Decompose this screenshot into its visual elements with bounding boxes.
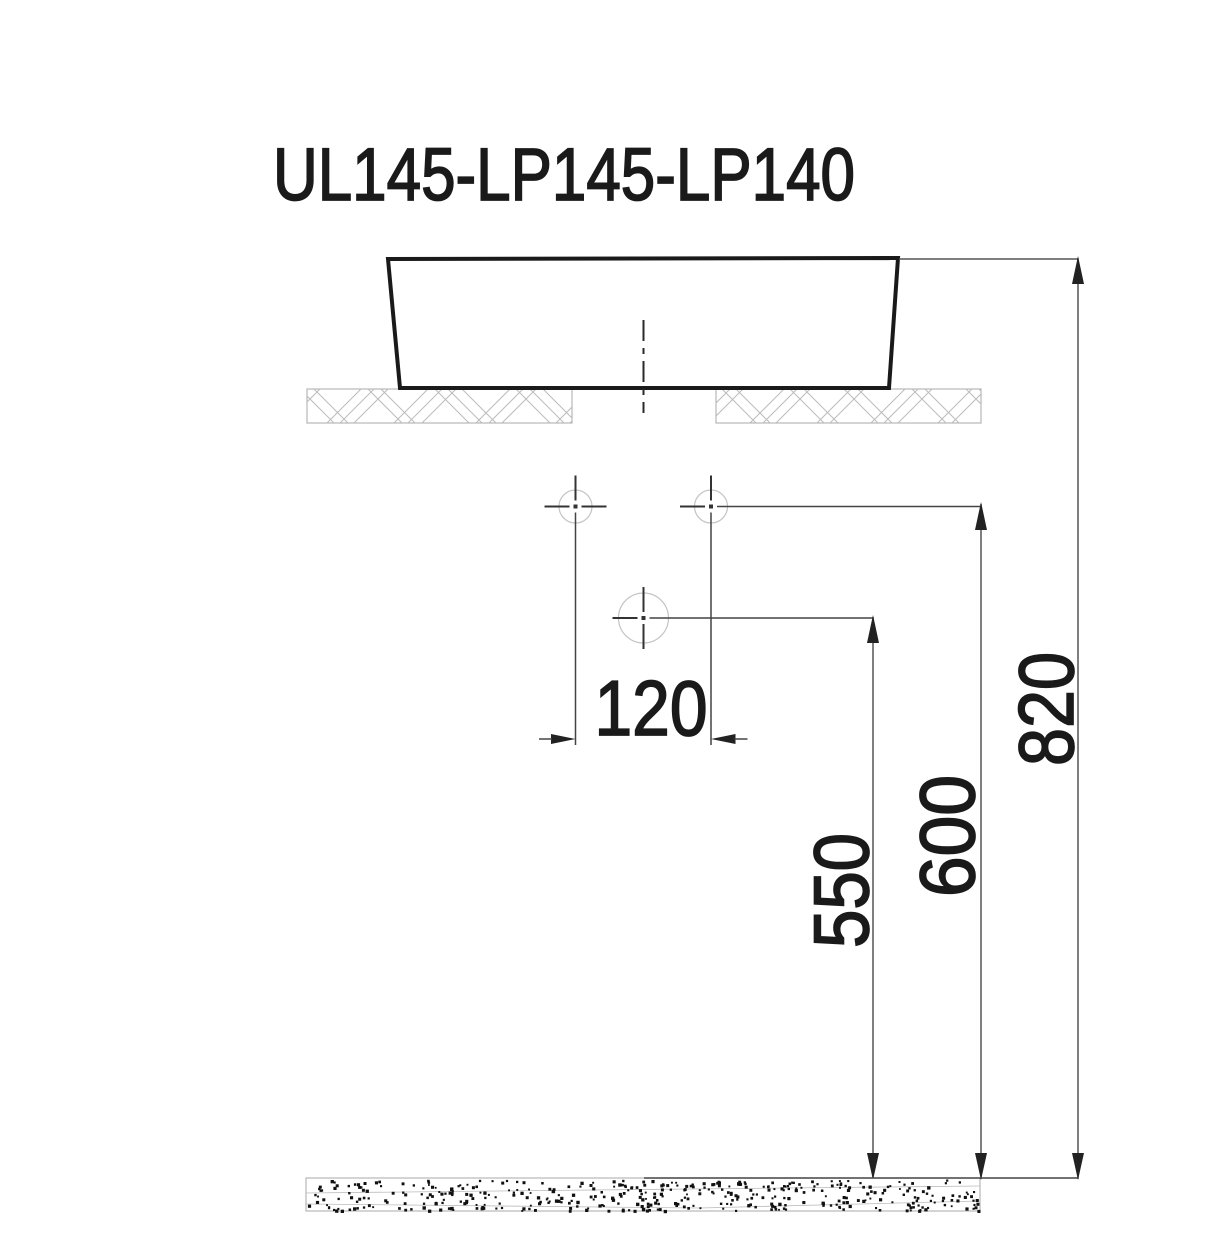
svg-text:600: 600 xyxy=(903,775,991,897)
svg-text:820: 820 xyxy=(1002,652,1090,766)
svg-text:UL145-LP145-LP140: UL145-LP145-LP140 xyxy=(273,133,855,216)
svg-text:550: 550 xyxy=(797,833,885,948)
svg-text:120: 120 xyxy=(595,664,708,752)
